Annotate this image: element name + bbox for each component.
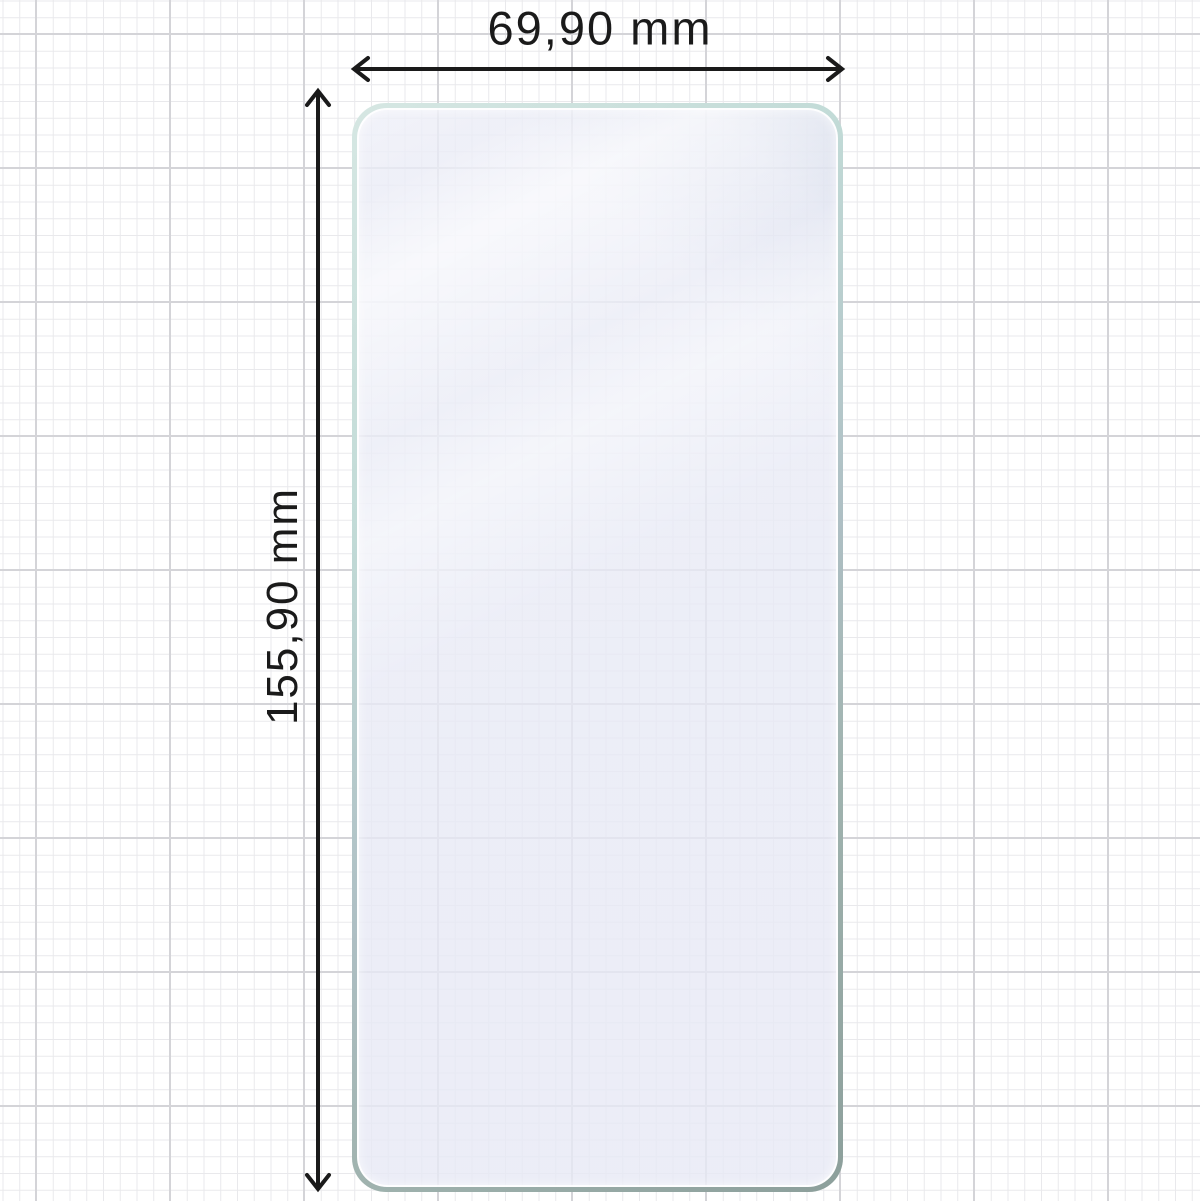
arrow-left-head-icon [354,58,368,80]
height-dimension-label: 155,90 mm [258,487,308,725]
arrow-right-head-icon [828,58,842,80]
grid-background: 69,90 mm 155,90 mm [0,0,1200,1201]
width-dimension-label: 69,90 mm [488,1,713,56]
width-dimension-arrow [354,58,842,80]
screen-protector-glass [352,103,843,1192]
glass-surface [357,108,838,1187]
arrow-up-head-icon [307,91,329,105]
arrow-down-head-icon [307,1175,329,1189]
height-dimension-arrow [307,91,329,1189]
